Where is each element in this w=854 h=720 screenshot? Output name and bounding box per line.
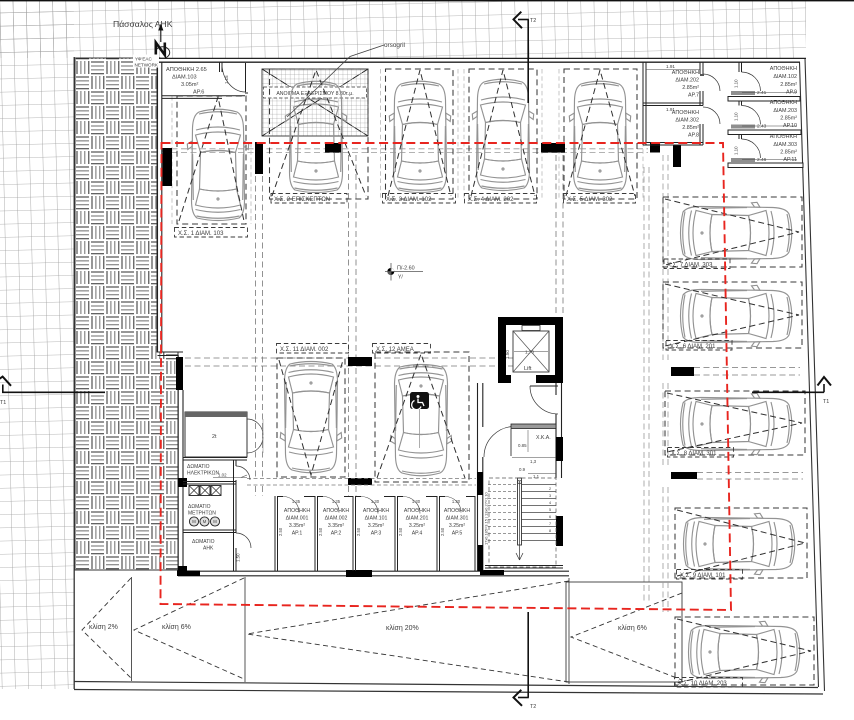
svg-text:1.15: 1.15 [224,75,229,84]
svg-text:6: 6 [549,515,551,519]
svg-text:1.10: 1.10 [734,112,739,121]
svg-text:Χ.Σ. 8 ΔΙΑΜ. 301: Χ.Σ. 8 ΔΙΑΜ. 301 [671,451,717,457]
svg-text:Χ.Σ. 2 ΕΠΙΣΚΕΠΤΩΝ: Χ.Σ. 2 ΕΠΙΣΚΕΠΤΩΝ [274,197,330,203]
svg-text:ΑΡ.7: ΑΡ.7 [688,93,699,99]
svg-text:2.85m²: 2.85m² [780,150,797,156]
svg-text:Μ: Μ [192,519,196,524]
svg-text:ΑΡ.6: ΑΡ.6 [193,90,204,96]
svg-text:2.50: 2.50 [318,527,323,536]
svg-text:ΔΙΑΜ.201: ΔΙΑΜ.201 [406,516,429,522]
svg-text:ΑΝΟΙΓΜΑ ΕΞΑΕΡΙΣΜΟΥ 8.80τ.μ.: ΑΝΟΙΓΜΑ ΕΞΑΕΡΙΣΜΟΥ 8.80τ.μ. [276,91,353,97]
svg-text:ΑΠΟΘΗΚΗ: ΑΠΟΘΗΚΗ [444,508,470,514]
svg-text:2.50: 2.50 [278,527,283,536]
svg-text:Χ.Σ. 5 ΔΙΑΜ. 302: Χ.Σ. 5 ΔΙΑΜ. 302 [567,197,613,203]
svg-text:3: 3 [549,494,551,498]
svg-text:2.41: 2.41 [757,90,767,96]
svg-text:T2: T2 [530,704,536,710]
svg-text:2.50: 2.50 [356,527,361,536]
svg-text:3.25m²: 3.25m² [409,523,425,529]
svg-text:Χ.Σ. 7 ΔΙΑΜ. 303: Χ.Σ. 7 ΔΙΑΜ. 303 [667,263,713,269]
svg-text:ΑΠΟΘΗΚΗ: ΑΠΟΘΗΚΗ [770,134,797,140]
svg-text:ΑΠΟΘΗΚΗ: ΑΠΟΘΗΚΗ [284,508,310,514]
svg-text:ΑΠΟΘΗΚΗ: ΑΠΟΘΗΚΗ [363,508,389,514]
svg-text:ΔΙΑΜ.101: ΔΙΑΜ.101 [365,516,388,522]
svg-text:2t: 2t [212,434,217,440]
svg-text:ΥΦ'ΕΑC: ΥΦ'ΕΑC [135,57,152,62]
svg-text:κλίση 20%: κλίση 20% [386,624,419,632]
svg-text:Π/-2.60: Π/-2.60 [397,266,415,272]
svg-text:ΑΡ.11: ΑΡ.11 [783,157,797,163]
svg-text:ΑΠΟΘΗΚΗ: ΑΠΟΘΗΚΗ [672,110,699,116]
svg-text:1,3: 1,3 [530,459,537,464]
svg-text:ΑΡ.1: ΑΡ.1 [292,531,303,537]
svg-text:Μ: Μ [203,519,207,524]
svg-text:Μ: Μ [213,519,217,524]
svg-text:1.91: 1.91 [666,64,675,69]
svg-text:ΔΙΑΜ.102: ΔΙΑΜ.102 [773,74,797,80]
svg-text:Χ.Σ. 9 ΔΙΑΜ. 101: Χ.Σ. 9 ΔΙΑΜ. 101 [680,573,726,579]
svg-text:ΑΡ.2: ΑΡ.2 [331,531,342,537]
svg-text:1.30: 1.30 [452,499,461,504]
svg-text:1.50: 1.50 [236,553,241,562]
svg-text:ΑΗΚ: ΑΗΚ [203,546,214,552]
svg-text:T1: T1 [0,400,6,406]
svg-text:Υ/: Υ/ [398,275,403,281]
svg-text:3.35m²: 3.35m² [289,523,305,529]
svg-text:1.35: 1.35 [332,499,341,504]
svg-text:κλίση 6%: κλίση 6% [162,623,191,631]
svg-text:3.25m²: 3.25m² [449,523,465,529]
svg-text:ΔΙΑΜ.202: ΔΙΑΜ.202 [675,78,699,84]
svg-text:ΑΡ.4: ΑΡ.4 [412,531,423,537]
svg-text:T1: T1 [823,399,829,405]
svg-text:orsogril: orsogril [384,42,405,49]
svg-text:1.10: 1.10 [734,79,739,88]
svg-text:2.50: 2.50 [398,527,403,536]
svg-text:ΔΙΑΜ.303: ΔΙΑΜ.303 [773,142,797,148]
svg-text:ΔΙΑΜ.001: ΔΙΑΜ.001 [286,516,309,522]
svg-text:2.43: 2.43 [757,124,767,130]
svg-text:ΔΙΑΜ.203: ΔΙΑΜ.203 [773,108,797,114]
svg-text:2.85m²: 2.85m² [682,85,699,91]
svg-text:4: 4 [549,501,551,505]
svg-text:T2: T2 [530,18,536,24]
svg-text:ΔΙΑΜ.301: ΔΙΑΜ.301 [446,516,469,522]
svg-text:ΑΡ.3: ΑΡ.3 [371,531,382,537]
svg-text:1.02: 1.02 [218,473,227,478]
svg-text:ΑΠΟΘΗΚΗ: ΑΠΟΘΗΚΗ [323,508,349,514]
svg-text:Πάσσαλος ΑΗΚ: Πάσσαλος ΑΗΚ [113,19,173,29]
svg-text:3.05m²: 3.05m² [181,82,199,88]
svg-text:2.50: 2.50 [440,527,445,536]
svg-text:3.35m²: 3.35m² [328,523,344,529]
svg-text:ΑΠΟΘΗΚΗ 2.65: ΑΠΟΘΗΚΗ 2.65 [166,67,207,73]
svg-text:2: 2 [549,487,551,491]
svg-text:2.85m²: 2.85m² [682,125,699,131]
svg-text:1.50: 1.50 [505,350,510,359]
svg-text:3.25m²: 3.25m² [368,523,384,529]
svg-text:Χ.Σ. 3 ΔΙΑΜ. 102: Χ.Σ. 3 ΔΙΑΜ. 102 [386,197,432,203]
svg-text:1.35: 1.35 [292,499,301,504]
svg-text:1.10: 1.10 [734,146,739,155]
svg-text:Χ.Σ. 11 ΔΙΑΜ. 002: Χ.Σ. 11 ΔΙΑΜ. 002 [280,347,329,353]
svg-text:ΑΠΟΘΗΚΗ: ΑΠΟΘΗΚΗ [770,66,797,72]
svg-text:ΑΠΟΘΗΚΗ: ΑΠΟΘΗΚΗ [404,508,430,514]
svg-text:Χ.Σ. 10 ΔΙΑΜ. 203: Χ.Σ. 10 ΔΙΑΜ. 203 [678,681,727,687]
svg-text:ΔΩΜΑΤΙΟ: ΔΩΜΑΤΙΟ [188,504,211,510]
svg-text:Χ.Σ. 6 ΔΙΑΜ. 201: Χ.Σ. 6 ΔΙΑΜ. 201 [670,344,716,350]
svg-text:1.30: 1.30 [412,499,421,504]
svg-text:2.46: 2.46 [757,157,767,163]
svg-text:0.9: 0.9 [519,467,526,472]
svg-text:Lift: Lift [524,366,532,372]
svg-text:7: 7 [549,522,551,526]
svg-text:ΑΠΟΘΗΚΗ: ΑΠΟΘΗΚΗ [770,100,797,106]
svg-text:2.85m²: 2.85m² [780,82,797,88]
svg-text:ΜΕΤΡΗΤΩΝ: ΜΕΤΡΗΤΩΝ [188,511,216,517]
svg-text:ΑΡ.5: ΑΡ.5 [452,531,463,537]
svg-text:5: 5 [549,508,551,512]
svg-text:2.85m²: 2.85m² [780,116,797,122]
svg-text:Χ.Σ. 1 ΔΙΑΜ. 103: Χ.Σ. 1 ΔΙΑΜ. 103 [178,231,224,237]
svg-text:0.85: 0.85 [518,443,527,448]
svg-text:ΔΙΑΜ.302: ΔΙΑΜ.302 [675,118,699,124]
svg-text:1.30: 1.30 [371,499,380,504]
svg-text:ΑΡ.8: ΑΡ.8 [688,133,699,139]
svg-text:ΑΠΟΘΗΚΗ: ΑΠΟΘΗΚΗ [672,70,699,76]
svg-text:ΔΙΑΜ.002: ΔΙΑΜ.002 [325,516,348,522]
svg-text:17x0.185=3.15 | 13x0.27=1.10: 17x0.185=3.15 | 13x0.27=1.10 [484,491,489,545]
svg-text:ΔΩΜΑΤΙΟ: ΔΩΜΑΤΙΟ [192,539,215,545]
svg-text:ΔΙΑΜ.103: ΔΙΑΜ.103 [172,75,197,81]
svg-text:κλίση 2%: κλίση 2% [89,623,118,631]
svg-text:ΔΩΜΑΤΙΟ: ΔΩΜΑΤΙΟ [187,464,210,470]
svg-text:1.70: 1.70 [525,350,534,355]
svg-text:Χ.Σ. 12 ΑΜΕΑ: Χ.Σ. 12 ΑΜΕΑ [376,347,414,353]
svg-text:1.91: 1.91 [666,107,675,112]
svg-text:ΗΛΕΚΤΡΙΚΩΝ: ΗΛΕΚΤΡΙΚΩΝ [187,471,219,477]
svg-text:Χ.Κ.Α.: Χ.Κ.Α. [536,435,551,441]
svg-text:κλίση 6%: κλίση 6% [618,624,647,632]
svg-text:8: 8 [549,529,551,533]
svg-text:NETWORK: NETWORK [135,63,159,68]
svg-text:Χ.Σ. 4 ΔΙΑΜ. 202: Χ.Σ. 4 ΔΙΑΜ. 202 [468,197,514,203]
